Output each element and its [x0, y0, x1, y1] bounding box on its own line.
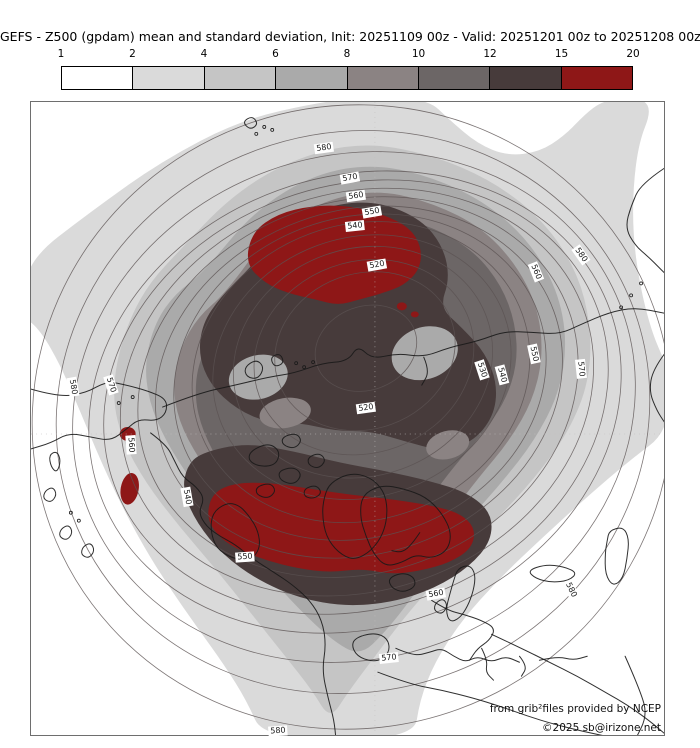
- colorbar-tick: 4: [201, 48, 208, 60]
- colorbar-tick: 1: [58, 48, 65, 60]
- colorbar-segment: [347, 67, 418, 89]
- colorbar-tick: 10: [412, 48, 425, 60]
- colorbar: [61, 66, 633, 90]
- colorbar-segment: [62, 67, 132, 89]
- colorbar-tick: 12: [483, 48, 496, 60]
- credit-copyright: ©2025 sb@irizone.net: [542, 722, 661, 734]
- colorbar-tick: 2: [129, 48, 136, 60]
- colorbar-segment: [489, 67, 560, 89]
- colorbar-segment: [561, 67, 632, 89]
- colorbar-tick: 8: [344, 48, 351, 60]
- map-canvas: [31, 102, 664, 735]
- colorbar-ticks: 1246810121520: [61, 48, 633, 62]
- map-panel: 5805705605505405205205805705605405505805…: [30, 101, 665, 736]
- colorbar-tick: 20: [626, 48, 639, 60]
- chart-title: GEFS - Z500 (gpdam) mean and standard de…: [0, 29, 700, 44]
- colorbar-segment: [275, 67, 346, 89]
- colorbar-segment: [132, 67, 203, 89]
- colorbar-segment: [204, 67, 275, 89]
- colorbar-tick: 15: [555, 48, 568, 60]
- colorbar-tick: 6: [272, 48, 279, 60]
- credit-source: from grib²files provided by NCEP: [490, 703, 661, 715]
- weather-chart-page: { "title": "GEFS - Z500 (gpdam) mean and…: [0, 0, 700, 748]
- colorbar-segment: [418, 67, 489, 89]
